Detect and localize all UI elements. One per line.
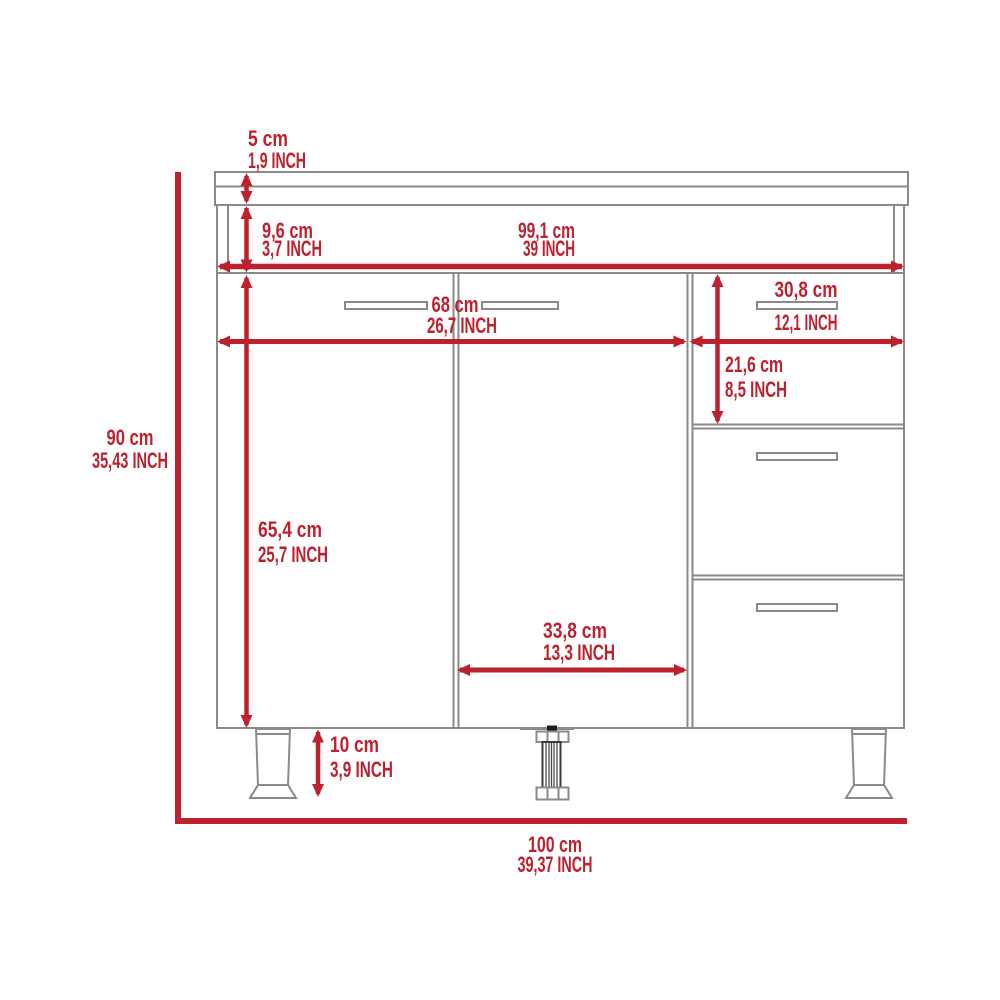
dim-label-interior-width: 99,1 cm 39 INCH [518, 218, 575, 261]
leg-height-inch: 3,9 INCH [330, 757, 393, 782]
interior-width-inch: 39 INCH [523, 236, 575, 261]
left-leg-body [256, 729, 290, 785]
right-leg [846, 729, 892, 798]
arrowhead-up [241, 173, 253, 186]
dim-label-countertop-to-door-gap: 9,6 cm 3,7 INCH [262, 218, 322, 261]
middle-drawer-handle [757, 453, 837, 460]
arrowhead-left [690, 336, 703, 348]
door-height-inch: 25,7 INCH [258, 542, 328, 567]
arrowhead-right [674, 664, 687, 676]
dim-label-door-height: 65,4 cm 25,7 INCH [258, 517, 328, 567]
cabinet-height-cm: 90 cm [107, 425, 154, 450]
dimension-lines [178, 172, 907, 821]
dim-label-top-drawer-height: 21,6 cm 8,5 INCH [725, 352, 787, 402]
double-door-width-inch: 26,7 INCH [427, 313, 497, 338]
cabinet-dimension-diagram: 5 cm 1,9 INCH 9,6 cm 3,7 INCH 99,1 cm 39… [0, 0, 1000, 1000]
left-leg [250, 729, 296, 798]
leg-height-cm: 10 cm [330, 732, 379, 757]
dim-label-double-door-width: 68 cm 26,7 INCH [427, 292, 497, 338]
leveler-cap [547, 726, 557, 732]
right-leg-foot [846, 785, 892, 798]
countertop-to-door-gap-inch: 3,7 INCH [262, 236, 322, 261]
arrowhead-up [312, 730, 324, 743]
cabinet-dimension-diagram-page: 5 cm 1,9 INCH 9,6 cm 3,7 INCH 99,1 cm 39… [0, 0, 1000, 1000]
top-drawer-height-cm: 21,6 cm [725, 352, 783, 377]
single-door-width-inch: 13,3 INCH [543, 640, 615, 665]
arrowhead-up [712, 274, 724, 287]
right-door-handle [482, 302, 558, 309]
leveler-bottom-bracket [537, 788, 569, 800]
countertop [215, 172, 908, 205]
door-height-cm: 65,4 cm [258, 517, 322, 542]
dim-label-leg-height: 10 cm 3,9 INCH [330, 732, 393, 782]
drawer-width-cm: 30,8 cm [775, 277, 838, 302]
cabinet-height-inch: 35,43 INCH [92, 448, 168, 473]
top-drawer-handle [757, 302, 837, 309]
center-leveler-foot [520, 726, 574, 800]
arrowhead-right [674, 336, 687, 348]
arrowhead-down [312, 784, 324, 797]
right-leg-body [852, 729, 886, 785]
dim-label-countertop-thickness: 5 cm 1,9 INCH [248, 126, 306, 173]
arrowhead-left [217, 336, 230, 348]
dim-label-overall-width: 100 cm 39,37 INCH [518, 832, 593, 877]
bottom-drawer-handle [757, 604, 837, 611]
arrowhead-right [891, 261, 904, 273]
top-drawer-height-inch: 8,5 INCH [725, 377, 787, 402]
arrowhead-down [241, 191, 253, 204]
countertop-thickness-inch: 1,9 INCH [248, 148, 306, 173]
left-door-handle [345, 302, 427, 309]
arrowhead-left [217, 261, 230, 273]
dim-label-cabinet-height: 90 cm 35,43 INCH [92, 425, 168, 473]
drawer-width-inch: 12,1 INCH [775, 310, 838, 335]
arrowhead-up [241, 206, 253, 219]
dim-label-single-door-width: 33,8 cm 13,3 INCH [543, 618, 615, 665]
arrowhead-right [891, 336, 904, 348]
arrowhead-down [241, 715, 253, 728]
leveler-top-bracket [537, 732, 569, 743]
dimension-labels: 5 cm 1,9 INCH 9,6 cm 3,7 INCH 99,1 cm 39… [92, 126, 838, 877]
arrowhead-down [712, 411, 724, 424]
overall-width-inch: 39,37 INCH [518, 852, 593, 877]
left-leg-foot [250, 785, 296, 798]
arrowhead-up [241, 275, 253, 288]
overall-dimension-line [178, 172, 907, 821]
